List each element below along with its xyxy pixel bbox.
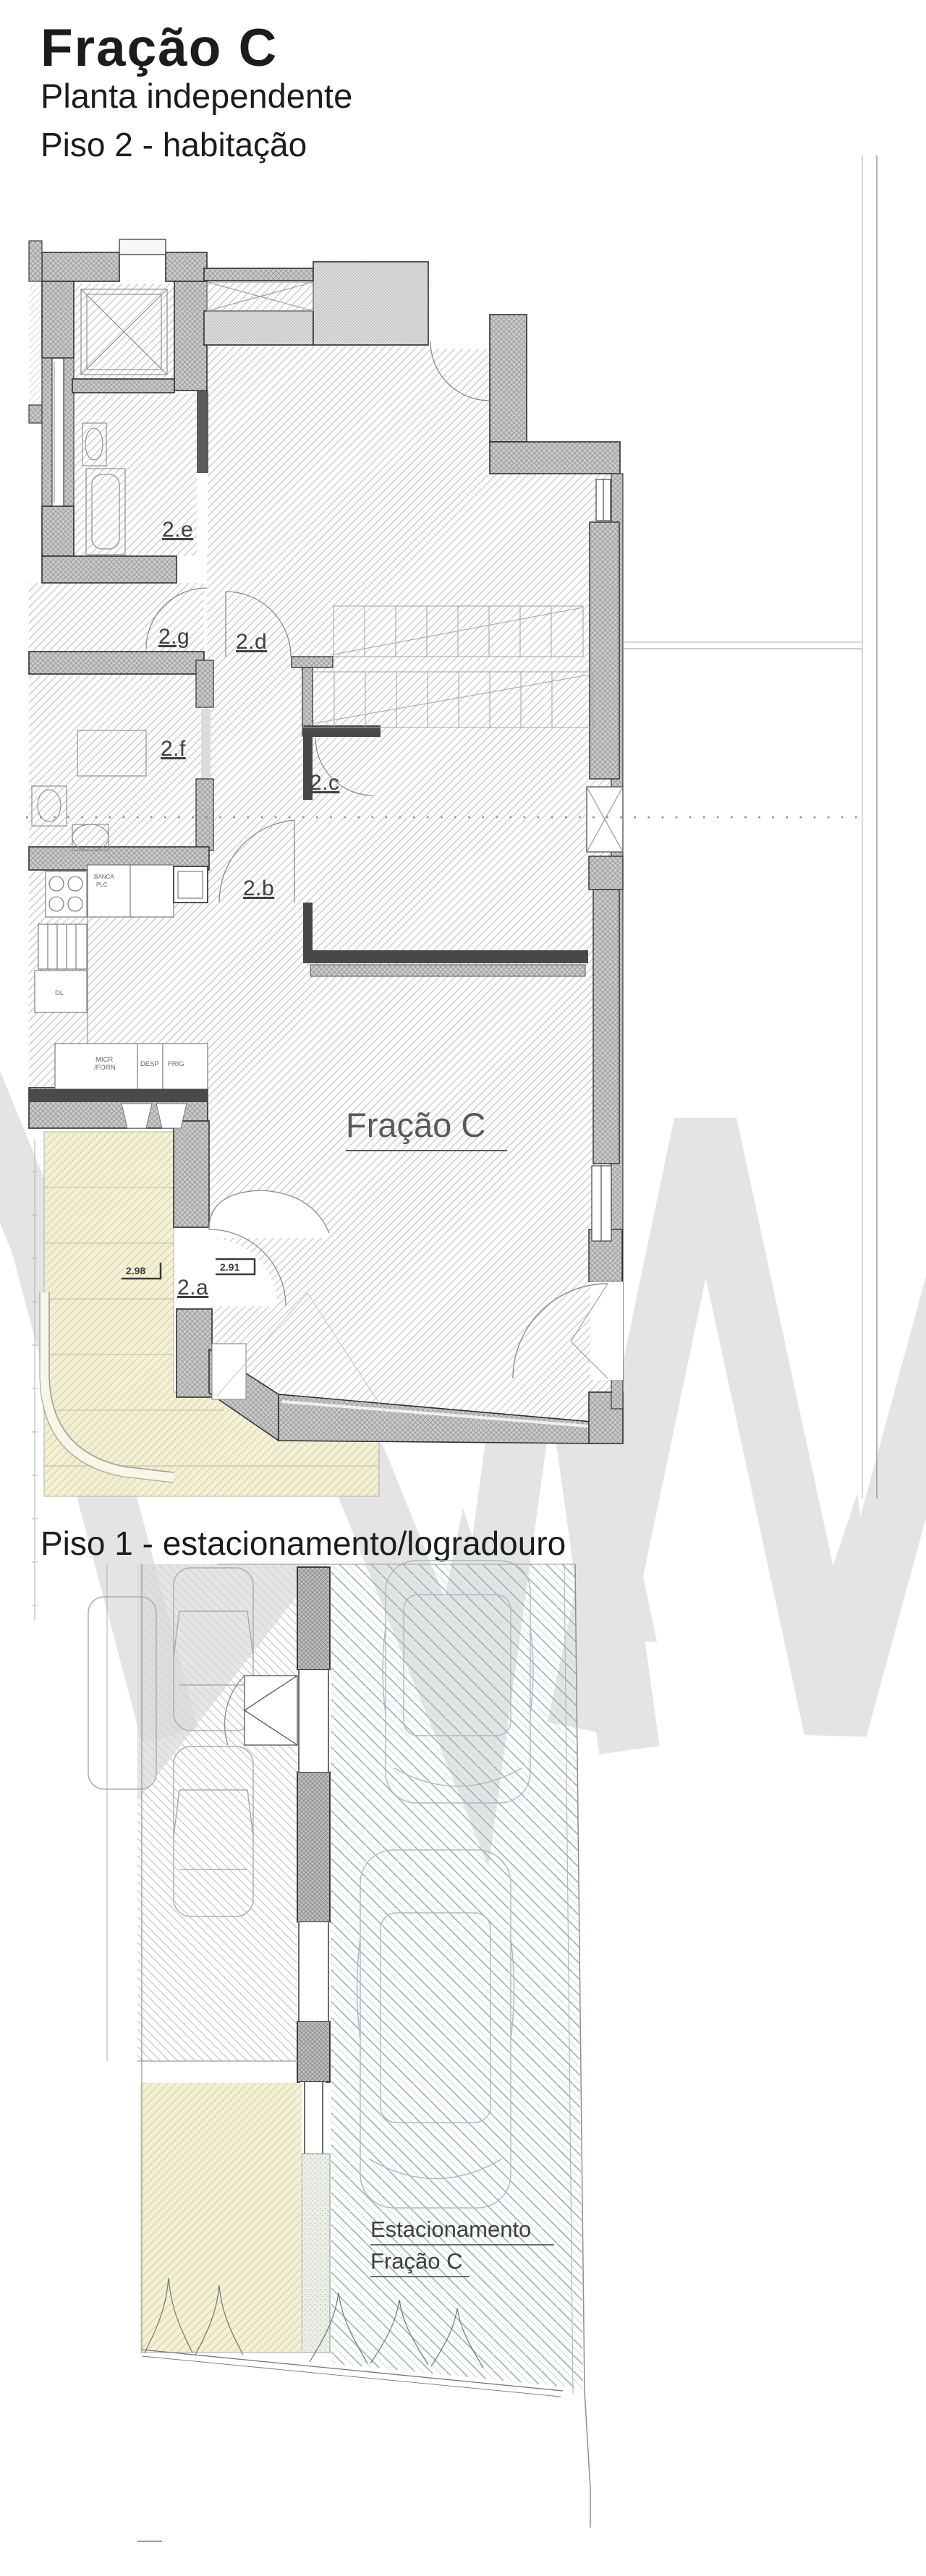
svg-text:MICR: MICR xyxy=(95,1056,113,1064)
svg-text:/FORN: /FORN xyxy=(94,1064,116,1072)
svg-text:2.e: 2.e xyxy=(162,518,193,542)
svg-text:Piso 2 - habitação: Piso 2 - habitação xyxy=(41,126,307,163)
svg-text:Piso 1 - estacionamento/lograd: Piso 1 - estacionamento/logradouro xyxy=(41,1524,566,1562)
svg-text:BANCA: BANCA xyxy=(94,874,114,880)
svg-text:PLC: PLC xyxy=(96,882,108,888)
svg-text:Planta independente: Planta independente xyxy=(41,77,352,115)
svg-text:2.c: 2.c xyxy=(310,771,340,795)
svg-text:Estacionamento: Estacionamento xyxy=(370,2217,531,2242)
svg-text:Fração C: Fração C xyxy=(41,19,278,77)
svg-text:2.91: 2.91 xyxy=(220,1261,239,1273)
svg-text:2.g: 2.g xyxy=(158,625,190,649)
svg-text:2.98: 2.98 xyxy=(126,1265,145,1276)
svg-text:Fração C: Fração C xyxy=(370,2248,462,2274)
svg-text:2.d: 2.d xyxy=(236,630,267,654)
svg-text:2.b: 2.b xyxy=(243,877,274,900)
svg-text:Fração C: Fração C xyxy=(346,1106,485,1144)
svg-text:2.a: 2.a xyxy=(177,1276,208,1300)
svg-text:FRIG: FRIG xyxy=(168,1060,184,1068)
svg-text:DESP: DESP xyxy=(140,1060,159,1068)
svg-text:DL: DL xyxy=(55,989,64,997)
svg-text:2.f: 2.f xyxy=(161,737,186,761)
